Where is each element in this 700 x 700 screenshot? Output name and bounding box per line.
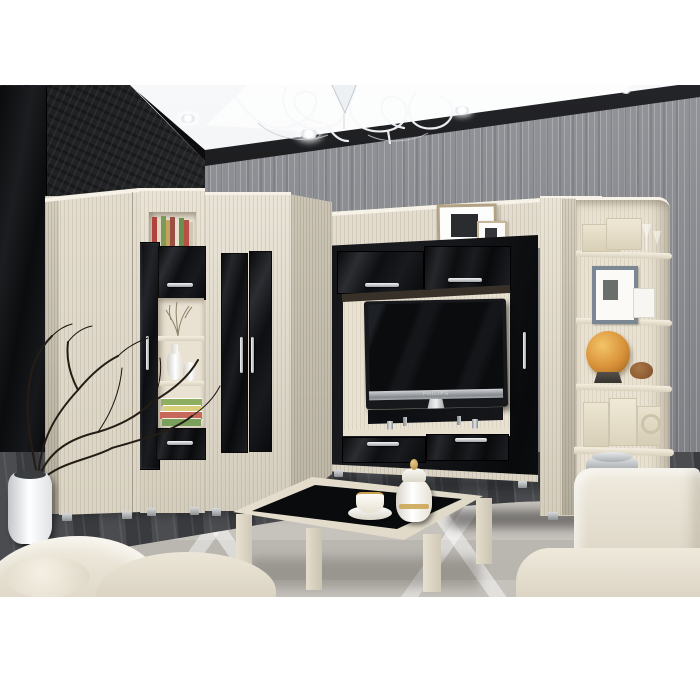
tv-top-door-left	[337, 251, 424, 294]
decor-box	[583, 402, 609, 447]
decor-bowl	[630, 362, 653, 379]
floor-vase-opening	[14, 470, 46, 479]
tv-top-door-handle	[448, 278, 482, 282]
spotlight-icon	[180, 114, 196, 123]
shelf-photo	[603, 280, 618, 300]
top-margin	[0, 0, 700, 85]
picture-frame-large-photo	[451, 214, 478, 237]
bottom-margin	[0, 597, 700, 700]
globe-stand	[594, 372, 622, 383]
tv-side-handle	[523, 332, 526, 369]
floor-vase	[8, 472, 52, 544]
chandelier-shade	[331, 83, 357, 113]
tv-drawer-handle	[367, 442, 399, 446]
spotlight-icon	[620, 88, 632, 94]
sofa-right-seat	[516, 548, 700, 597]
decor-box	[606, 218, 642, 250]
urn-band	[399, 504, 429, 509]
urn	[396, 478, 432, 522]
cabinet-foot	[548, 512, 558, 520]
display-upper-door-handle	[167, 283, 193, 287]
table-leg	[423, 534, 441, 592]
tv-top-door-right	[424, 246, 511, 290]
tv-screen	[368, 302, 504, 393]
wine-glass-stem	[646, 238, 647, 250]
wardrobe-door-handle	[251, 337, 254, 373]
shelf-leg	[457, 416, 461, 425]
urn-finial	[410, 459, 418, 470]
cabinet-foot	[518, 481, 527, 488]
silver-tin-lid	[592, 452, 632, 462]
decor-box	[609, 398, 637, 446]
decor-box-ring	[641, 414, 661, 434]
amber-globe	[586, 331, 630, 376]
sofa-left-pillow	[4, 556, 90, 598]
tv-drawer-handle	[455, 438, 487, 442]
furniture-photo: PHILIPS	[0, 0, 700, 700]
shelf-leg	[403, 417, 407, 426]
chandelier	[228, 83, 463, 151]
display-upper-door	[158, 246, 206, 300]
table-shadow	[250, 558, 480, 588]
tv-top-door-handle	[365, 283, 399, 287]
cabinet-foot	[334, 470, 343, 477]
table-leg	[306, 528, 322, 590]
teacup	[356, 492, 384, 513]
urn-lid	[402, 468, 426, 482]
table-leg	[476, 498, 492, 564]
shelf-card	[633, 288, 655, 318]
